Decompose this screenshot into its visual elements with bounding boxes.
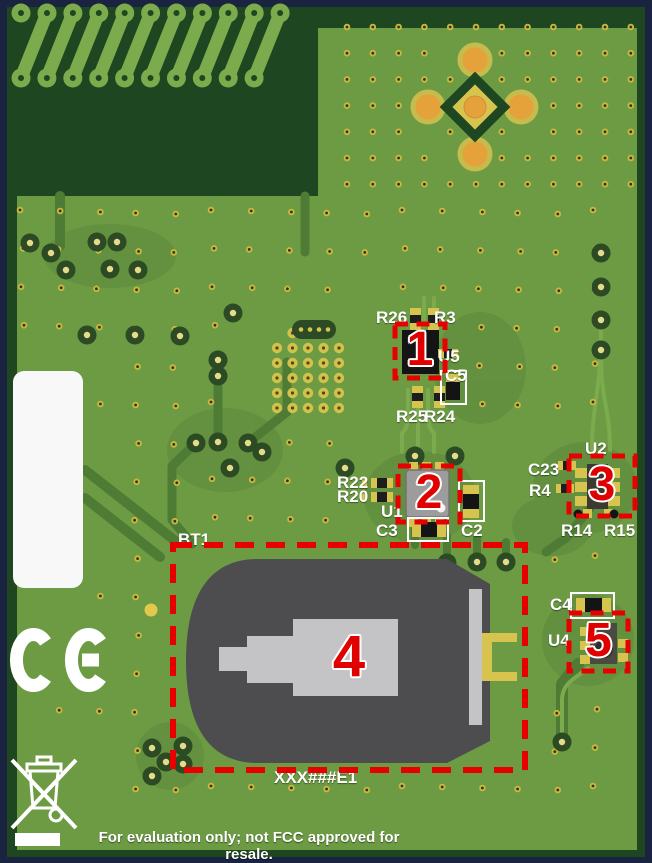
callout-number-3: 3 (589, 461, 616, 509)
pcb-figure: R26R3U5C5R25R24R22R20U1C3C2U2C23R4R14R15… (0, 0, 652, 863)
callout-number-2: 2 (416, 469, 443, 517)
callout-number-5: 5 (585, 617, 612, 665)
callout-number-4: 4 (333, 627, 365, 685)
callout-number-1: 1 (407, 326, 434, 374)
callout-number-layer: 12345 (0, 0, 652, 863)
